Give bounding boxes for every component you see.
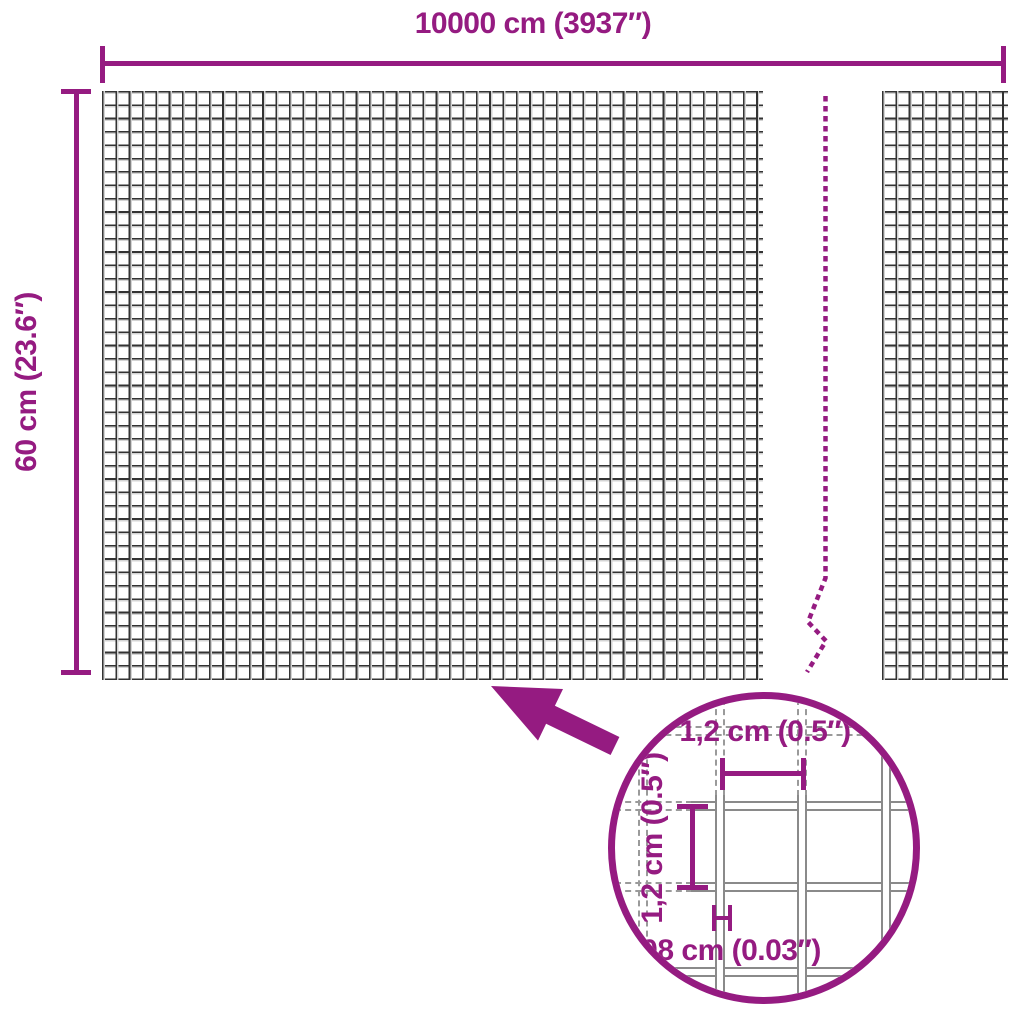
wire-thickness-marker: [728, 905, 732, 931]
break-dashed-line: [807, 96, 826, 672]
detail-cell-width-dimension: [722, 771, 803, 776]
detail-cell-height-tick: [677, 885, 708, 890]
mesh-panel-right: [882, 91, 1008, 680]
wire-thickness-marker: [716, 916, 728, 920]
magnifier-arrow-icon: [491, 686, 619, 755]
detail-cell-height-label: 1,2 cm (0.5″): [638, 738, 668, 938]
product-dimension-diagram: 10000 cm (3937″) 60 cm (23.6″) 1,2 cm (0: [0, 0, 1024, 1024]
mesh-vertical-wires: [102, 91, 759, 680]
detail-cell-height-dimension: [690, 806, 695, 887]
height-dimension-label: 60 cm (23.6″): [9, 262, 45, 502]
mesh-panel-left: [102, 91, 763, 680]
detail-zoom-circle: 1,2 cm (0.5″) 1,2 cm (0.5″) 0,08 cm (0.0…: [608, 692, 920, 1004]
width-dimension-label: 10000 cm (3937″): [333, 8, 733, 40]
detail-cell-width-tick: [801, 758, 806, 790]
height-dimension-line: [61, 91, 91, 673]
detail-wire-horizontal: [615, 967, 913, 977]
mesh-vertical-wires: [882, 91, 1004, 680]
width-dimension-line: [102, 46, 1004, 83]
detail-cell-width-tick: [720, 758, 725, 790]
detail-cell-height-tick: [677, 804, 708, 809]
detail-cell-width-label: 1,2 cm (0.5″): [645, 717, 885, 747]
detail-wire-thickness-label: 0,08 cm (0.03″): [608, 936, 839, 966]
